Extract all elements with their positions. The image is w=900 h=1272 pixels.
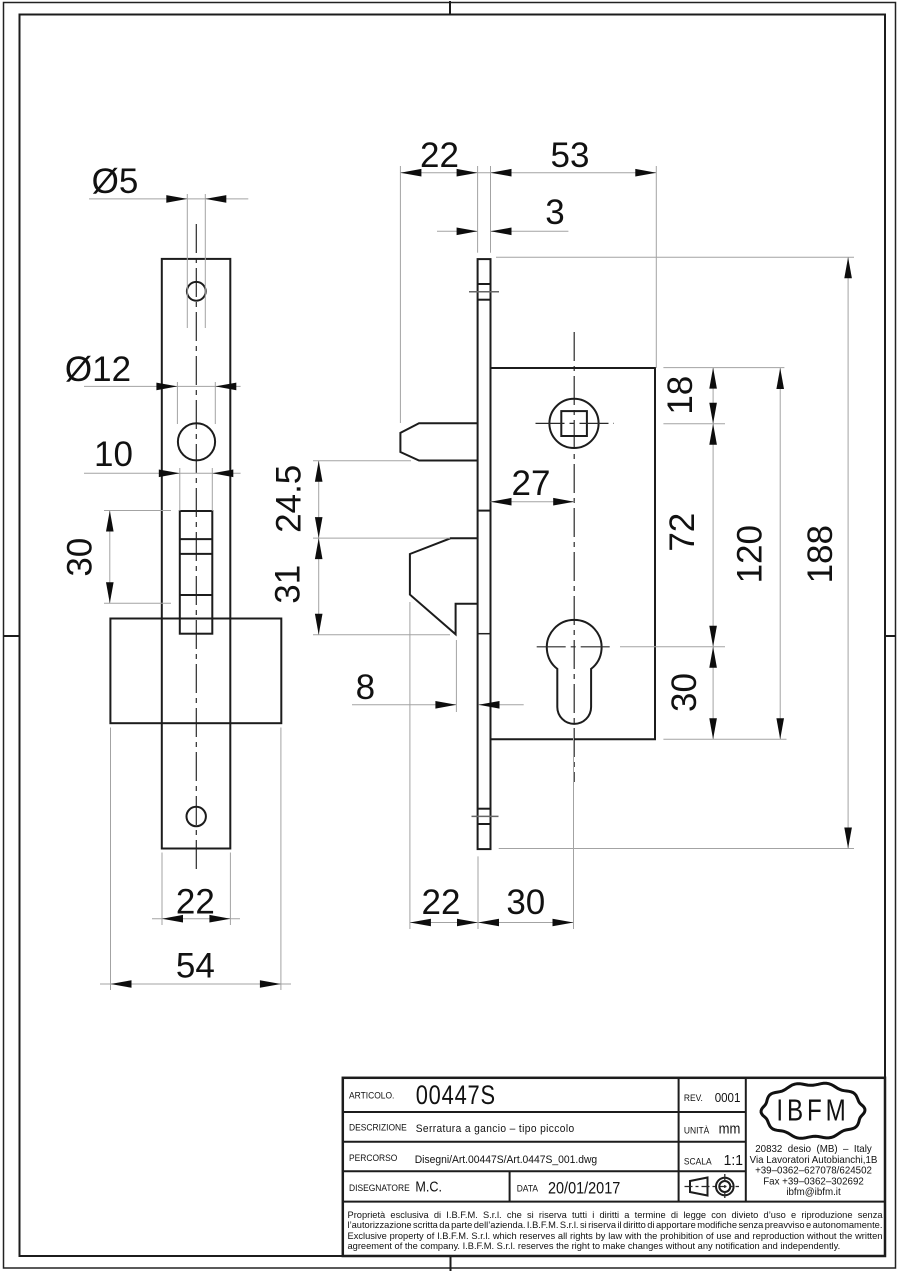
svg-text:M.C.: M.C. (415, 1178, 442, 1195)
svg-text:188: 188 (801, 525, 840, 583)
svg-text:REV.: REV. (684, 1093, 703, 1103)
svg-text:Serratura a gancio – tipo picc: Serratura a gancio – tipo piccolo (416, 1123, 575, 1135)
svg-text:20/01/2017: 20/01/2017 (548, 1180, 620, 1198)
svg-text:22: 22 (422, 883, 461, 922)
svg-text:30: 30 (60, 538, 99, 577)
svg-text:30: 30 (665, 673, 704, 712)
svg-text:72: 72 (663, 513, 702, 552)
svg-text:20832 desio (MB) – Italy: 20832 desio (MB) – Italy (755, 1144, 872, 1155)
svg-text:PERCORSO: PERCORSO (349, 1153, 398, 1163)
svg-text:DISEGNATORE: DISEGNATORE (349, 1183, 410, 1193)
svg-text:Ø5: Ø5 (92, 162, 139, 201)
svg-text:120: 120 (730, 525, 769, 583)
svg-text:+39–0362–627078/624502: +39–0362–627078/624502 (755, 1165, 872, 1176)
svg-text:8: 8 (356, 668, 375, 707)
svg-text:53: 53 (551, 136, 590, 175)
svg-text:Ø12: Ø12 (65, 350, 131, 389)
svg-text:Fax +39–0362–302692: Fax +39–0362–302692 (763, 1176, 864, 1187)
svg-text:Disegni/Art.00447S/Art.0447S_0: Disegni/Art.00447S/Art.0447S_001.dwg (415, 1154, 598, 1166)
svg-text:UNITÀ: UNITÀ (684, 1125, 709, 1135)
svg-text:ARTICOLO.: ARTICOLO. (349, 1090, 394, 1100)
svg-text:DATA: DATA (517, 1183, 538, 1193)
svg-text:SCALA: SCALA (684, 1156, 712, 1166)
svg-text:mm: mm (719, 1119, 741, 1136)
svg-text:24.5: 24.5 (270, 465, 309, 533)
svg-text:00447S: 00447S (416, 1081, 496, 1111)
svg-text:10: 10 (94, 435, 133, 474)
svg-text:18: 18 (661, 376, 700, 415)
svg-text:27: 27 (512, 464, 551, 503)
svg-text:DESCRIZIONE: DESCRIZIONE (349, 1122, 407, 1132)
svg-text:22: 22 (420, 136, 459, 175)
svg-text:IBFM: IBFM (776, 1093, 849, 1128)
svg-text:22: 22 (176, 883, 215, 922)
svg-text:ibfm@ibfm.it: ibfm@ibfm.it (786, 1187, 841, 1198)
svg-text:31: 31 (269, 565, 308, 604)
svg-text:0001: 0001 (715, 1090, 741, 1105)
svg-text:Via Lavoratori Autobianchi,1B: Via Lavoratori Autobianchi,1B (750, 1155, 878, 1166)
svg-text:54: 54 (176, 947, 215, 986)
svg-text:3: 3 (545, 193, 564, 232)
svg-text:1:1: 1:1 (724, 1153, 743, 1170)
svg-text:30: 30 (506, 883, 545, 922)
